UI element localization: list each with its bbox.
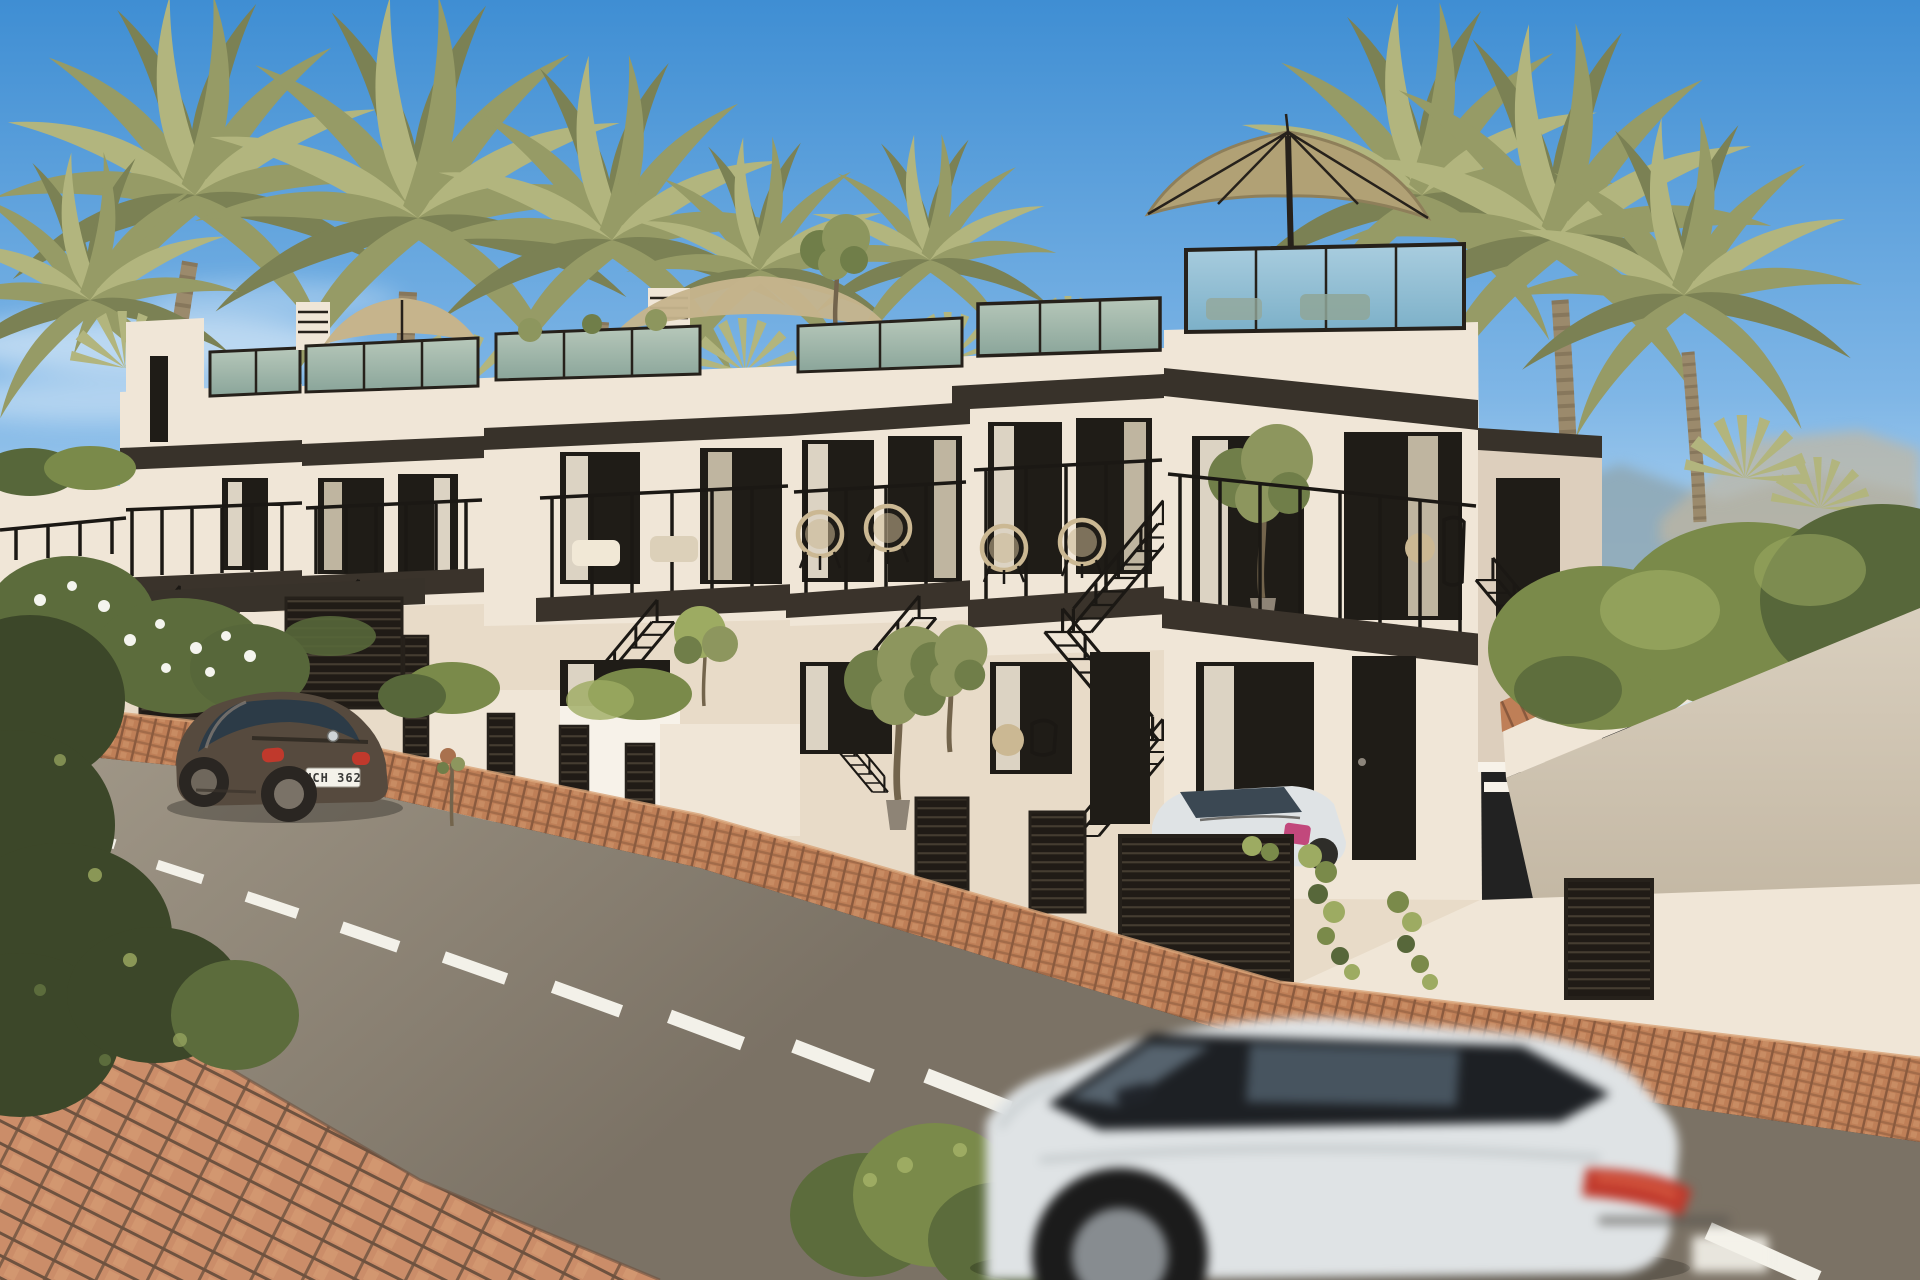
taillight	[261, 747, 284, 763]
taillight	[352, 752, 370, 765]
slatted-vent	[916, 798, 968, 890]
rooftop-plant	[645, 309, 667, 331]
lounge-chair	[650, 536, 698, 562]
rooftop-plant	[518, 318, 542, 342]
lounge-chair	[572, 540, 620, 566]
suv-model-lettering	[1598, 1216, 1730, 1225]
slatted-vent	[1030, 812, 1085, 912]
rooftop-lounger	[1206, 298, 1262, 320]
vw-badge	[328, 731, 339, 742]
rooftop-lounger	[1300, 294, 1370, 320]
render-scene: UCH 362	[0, 0, 1920, 1280]
rooftop-plant	[582, 314, 602, 334]
suv-license-plate	[1692, 1236, 1768, 1272]
terrace-table	[992, 724, 1024, 756]
door-handle	[1358, 758, 1366, 766]
slatted-vent	[1566, 880, 1652, 998]
planter-pot	[886, 800, 910, 830]
